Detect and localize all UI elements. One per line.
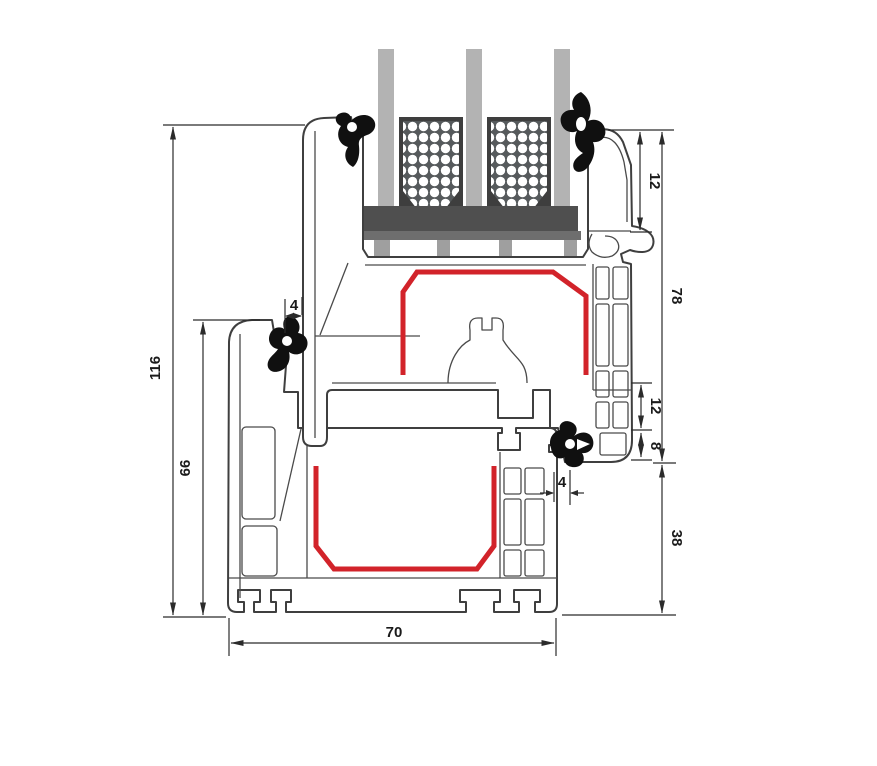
dimension-70: 70 — [229, 618, 556, 656]
glazing-packer-legs — [374, 240, 577, 256]
dim-label-38: 38 — [668, 530, 685, 547]
dimension-12-mid: 12 — [631, 383, 664, 430]
dim-label-12-mid: 12 — [647, 398, 664, 415]
dim-label-116: 116 — [147, 356, 164, 380]
window-cross-section-svg: 116 66 4 12 78 — [0, 0, 877, 766]
glass-pane-middle — [466, 49, 482, 225]
dim-label-78: 78 — [668, 288, 685, 305]
gasket-hole — [565, 439, 575, 449]
technical-drawing: 116 66 4 12 78 — [0, 0, 877, 766]
dim-label-66: 66 — [177, 460, 194, 477]
glass-pane-inner — [554, 49, 570, 225]
dimension-8: 8 — [631, 433, 664, 460]
dim-label-12-top: 12 — [646, 173, 663, 190]
dim-label-8: 8 — [647, 442, 664, 450]
gasket-hole — [347, 122, 357, 132]
gasket-hole — [282, 336, 292, 346]
dimension-38: 38 — [562, 465, 685, 615]
glass-pane-outer — [378, 49, 394, 225]
dim-label-4-bottom: 4 — [558, 474, 567, 491]
gasket-hole — [576, 117, 586, 131]
dim-label-4-top: 4 — [290, 297, 299, 314]
triple-glazing-unit — [357, 49, 581, 256]
spacer-bar-left — [399, 117, 463, 213]
spacer-bar-right — [487, 117, 551, 213]
glazing-bridge-plate — [357, 231, 581, 240]
dim-label-70: 70 — [386, 624, 403, 641]
glazing-setting-block — [364, 206, 578, 231]
